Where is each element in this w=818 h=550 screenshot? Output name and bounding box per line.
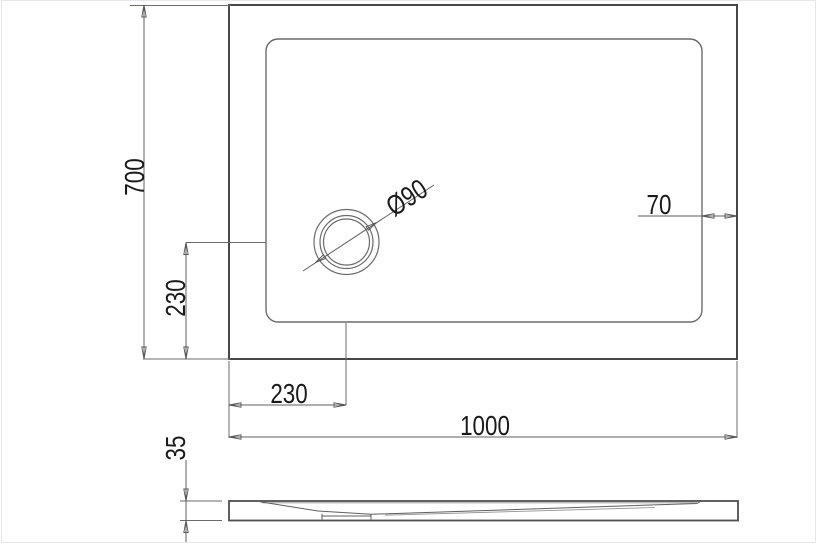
profile-basin-slope (260, 502, 371, 515)
side-view (229, 501, 738, 521)
dim-label-rim-width: 70 (647, 191, 672, 219)
dim-label-drain-offset-vertical: 230 (162, 279, 190, 316)
dim-label-height: 700 (121, 158, 149, 195)
tray-basin-outline (266, 39, 702, 322)
top-view (229, 5, 737, 359)
drawing-geometry (0, 0, 818, 550)
dim-label-drain-offset-horizontal: 230 (270, 380, 307, 408)
drawing-canvas: 700 230 35 230 1000 70 Ø90 (0, 0, 818, 550)
dimension-thickness-35 (180, 460, 222, 543)
dim-label-width: 1000 (460, 412, 510, 440)
profile-floor-edge-line (385, 508, 655, 516)
dim-label-thickness: 35 (162, 436, 190, 461)
tray-outer-outline (229, 5, 737, 359)
dimension-drain-offset-vertical-230 (184, 243, 266, 360)
